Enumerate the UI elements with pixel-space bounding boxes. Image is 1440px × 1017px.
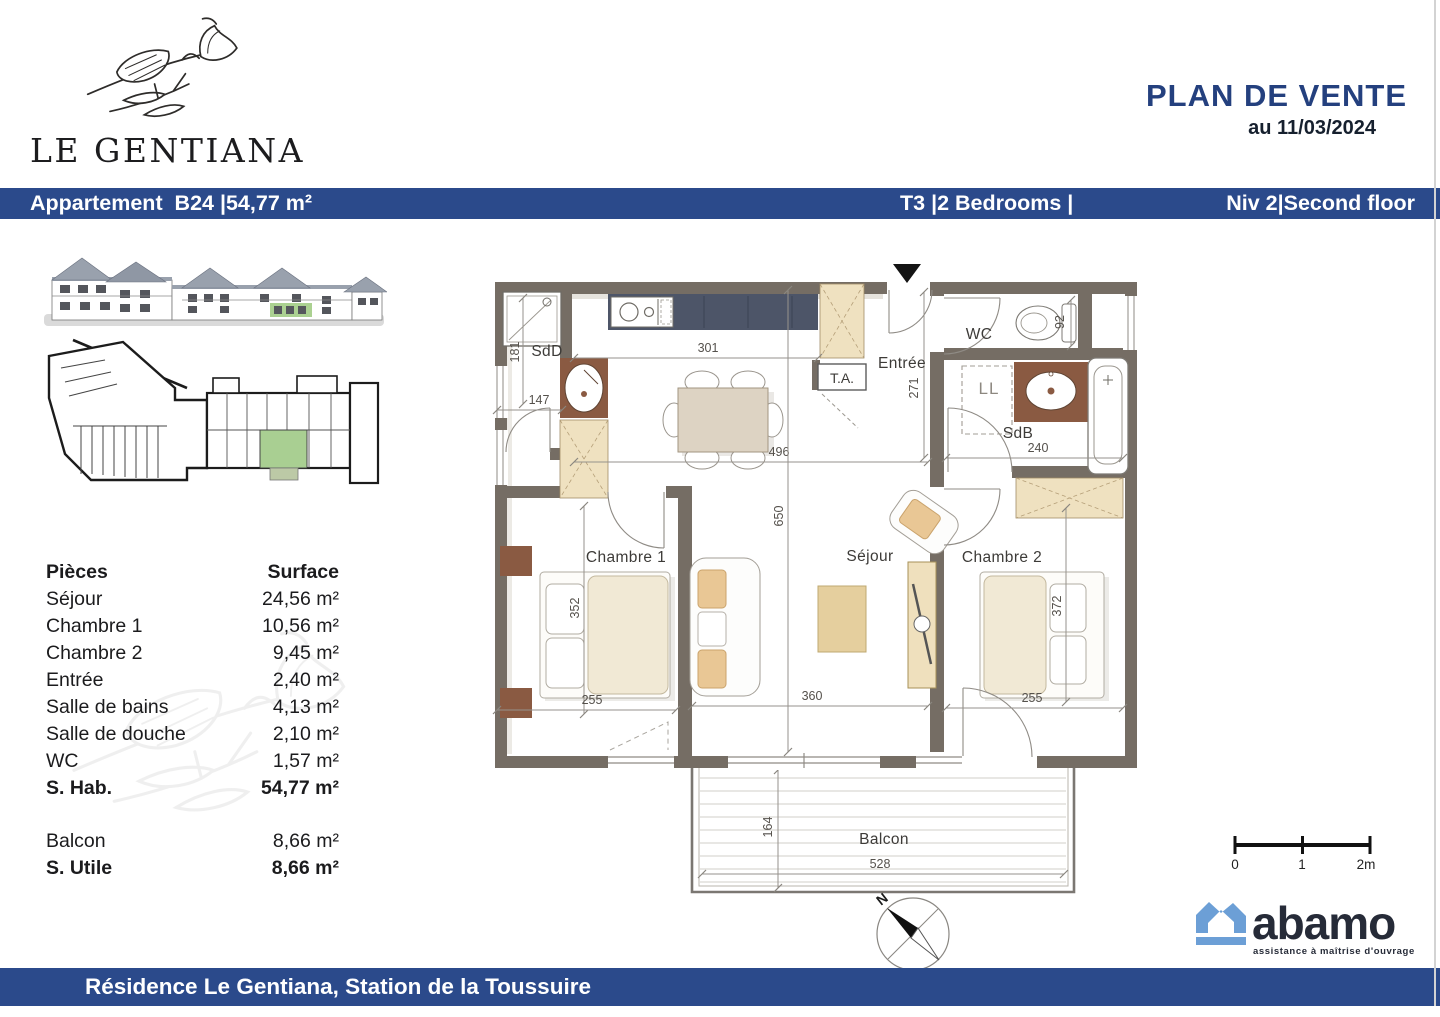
table-row: Salle de douche2,10 m² [46, 721, 339, 748]
room-label-chambre2: Chambre 2 [962, 549, 1042, 566]
svg-text:271: 271 [907, 378, 921, 399]
plan-title: PLAN DE VENTE [1146, 78, 1407, 114]
room-surface: 8,66 m² [272, 857, 339, 880]
dining-table [678, 388, 768, 452]
scale-1: 1 [1298, 857, 1306, 872]
room-surface: 2,40 m² [273, 669, 339, 692]
room-label: WC [46, 750, 79, 773]
abamo-wordmark: abamo [1252, 897, 1395, 949]
room-label-entree: Entrée [878, 355, 926, 372]
room-label: Chambre 2 [46, 642, 142, 665]
room-surface: 9,45 m² [273, 642, 339, 665]
table-row: Séjour24,56 m² [46, 586, 339, 613]
plan-date: au 11/03/2024 [1248, 117, 1376, 140]
level-key-plan [35, 338, 390, 528]
table-row-total: S. Hab.54,77 m² [46, 775, 339, 802]
kitchen-counter [608, 294, 818, 330]
room-label: Entrée [46, 669, 103, 692]
plan-de-vente-page: LE GENTIANA PLAN DE VENTE au 11/03/2024 … [0, 0, 1440, 1017]
scale-bar: 0 1 2m [1225, 831, 1380, 873]
room-label: Salle de douche [46, 723, 186, 746]
room-surface: 1,57 m² [273, 750, 339, 773]
title-bar: Appartement B24 |54,77 m² T3 |2 Bedrooms… [0, 188, 1440, 219]
room-label-sdb: SdB [1003, 425, 1034, 442]
room-label-sejour: Séjour [846, 548, 893, 565]
entry-arrow-icon [893, 264, 921, 283]
table-row: Chambre 110,56 m² [46, 613, 339, 640]
room-surface: 10,56 m² [262, 615, 339, 638]
table-row: Chambre 29,45 m² [46, 640, 339, 667]
room-label: Chambre 1 [46, 615, 142, 638]
svg-text:360: 360 [802, 689, 823, 703]
building-elevation [42, 250, 387, 338]
svg-text:181: 181 [508, 342, 522, 363]
svg-text:240: 240 [1028, 441, 1049, 455]
room-label: Séjour [46, 588, 102, 611]
svg-text:301: 301 [698, 341, 719, 355]
type-label: T3 |2 Bedrooms | [900, 188, 1073, 219]
table-row: Salle de bains4,13 m² [46, 694, 339, 721]
coffee-table [818, 586, 866, 652]
abamo-logo: abamo assistance à maîtrise d'ouvrage [1192, 897, 1414, 959]
apartment-floor-plan: Balcon 164 528 [480, 248, 1160, 903]
nightstand [500, 546, 532, 576]
svg-text:147: 147 [529, 393, 550, 407]
svg-text:164: 164 [761, 817, 775, 838]
room-surface: 4,13 m² [273, 696, 339, 719]
surface-table: Pièces Surface Séjour24,56 m² Chambre 11… [46, 559, 339, 882]
room-surface: 24,56 m² [262, 588, 339, 611]
footer-bar: Résidence Le Gentiana, Station de la Tou… [0, 968, 1440, 1006]
table-row: Entrée2,40 m² [46, 667, 339, 694]
room-label-sdd: SdD [531, 343, 562, 360]
svg-text:528: 528 [870, 857, 891, 871]
ll-label: LL [979, 379, 1000, 398]
table-row: WC1,57 m² [46, 748, 339, 775]
compass-rose: N [868, 892, 958, 977]
col-surface: Surface [267, 561, 339, 584]
footer-text: Résidence Le Gentiana, Station de la Tou… [85, 968, 591, 1006]
room-label-wc: WC [966, 326, 993, 343]
table-row: Balcon8,66 m² [46, 828, 339, 855]
gentiana-flower-icon [72, 12, 244, 132]
room-surface: 8,66 m² [273, 830, 339, 853]
dim-balcony: 164 528 [698, 766, 1068, 892]
col-rooms: Pièces [46, 561, 108, 584]
room-label: S. Hab. [46, 777, 112, 800]
apartment-label: Appartement B24 |54,77 m² [30, 188, 312, 219]
scale-0: 0 [1231, 857, 1239, 872]
table-header: Pièces Surface [46, 559, 339, 586]
svg-text:372: 372 [1050, 596, 1064, 617]
table-row-total: S. Utile8,66 m² [46, 855, 339, 882]
north-label: N [873, 892, 891, 908]
room-label: Salle de bains [46, 696, 169, 719]
level-label: Niv 2|Second floor [1226, 188, 1415, 219]
key-plan-highlight [260, 430, 307, 468]
nightstand [500, 688, 532, 718]
room-label-chambre1: Chambre 1 [586, 549, 666, 566]
room-label: S. Utile [46, 857, 112, 880]
svg-text:255: 255 [582, 693, 603, 707]
svg-text:255: 255 [1022, 691, 1043, 705]
room-surface: 2,10 m² [273, 723, 339, 746]
abamo-mark-icon [1196, 902, 1246, 945]
svg-text:352: 352 [568, 598, 582, 619]
ta-label: T.A. [830, 370, 854, 386]
svg-text:92: 92 [1053, 315, 1067, 329]
page-right-border [1434, 0, 1436, 1006]
room-label-balcon: Balcon [859, 831, 909, 848]
room-label: Balcon [46, 830, 106, 853]
svg-text:650: 650 [772, 506, 786, 527]
scale-2m: 2m [1357, 857, 1376, 872]
brand-title: LE GENTIANA [30, 131, 305, 170]
abamo-tagline: assistance à maîtrise d'ouvrage [1253, 946, 1414, 957]
balcony: Balcon 164 528 [692, 766, 1074, 892]
room-surface: 54,77 m² [261, 777, 339, 800]
svg-text:496: 496 [769, 445, 790, 459]
